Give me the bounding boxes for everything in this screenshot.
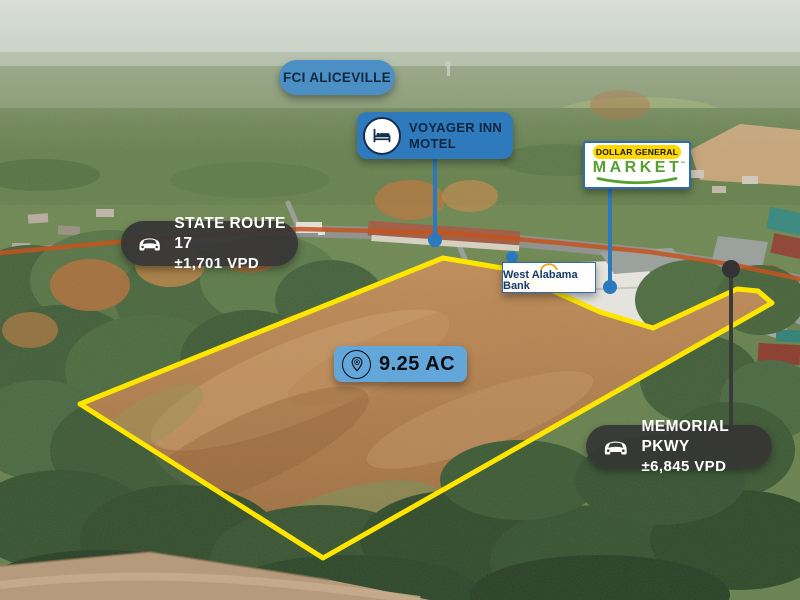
- voyager-inn-text: VOYAGER INN MOTEL: [409, 120, 502, 151]
- acreage-label: 9.25 AC: [334, 346, 467, 382]
- bed-icon: [363, 117, 401, 155]
- state-route-17-text: STATE ROUTE 17 ±1,701 VPD: [174, 214, 298, 274]
- west-alabama-bank-label: West Alabama Bank: [502, 262, 596, 293]
- acreage-value: 9.25 AC: [379, 353, 455, 376]
- location-pin-icon: [342, 350, 371, 379]
- memorial-pkwy-location-dot: [722, 260, 740, 278]
- photo-grain: [0, 0, 800, 600]
- aerial-listing-photo: FCI ALICEVILLE VOYAGER INN MOTEL DOLLAR …: [0, 0, 800, 600]
- memorial-pkwy-label: MEMORIAL PKWY ±6,845 VPD: [586, 425, 772, 468]
- aerial-photo-background: [0, 0, 800, 600]
- voyager-inn-motel-label: VOYAGER INN MOTEL: [357, 112, 513, 159]
- dollar-general-location-dot: [603, 280, 617, 294]
- voyager-location-dot: [428, 233, 442, 247]
- market-wordmark: MARKET ™: [593, 160, 685, 176]
- state-route-17-label: STATE ROUTE 17 ±1,701 VPD: [121, 221, 298, 266]
- trademark-symbol: ™: [680, 162, 685, 167]
- memorial-pkwy-text: MEMORIAL PKWY ±6,845 VPD: [642, 417, 772, 477]
- fci-aliceville-text: FCI ALICEVILLE: [283, 70, 391, 85]
- car-icon: [599, 436, 633, 458]
- dollar-general-banner: DOLLAR GENERAL: [593, 145, 681, 159]
- market-swoosh: [595, 177, 679, 185]
- bank-name-text: West Alabama Bank: [503, 270, 595, 292]
- fci-aliceville-label: FCI ALICEVILLE: [279, 60, 395, 95]
- dollar-general-market-sign: DOLLAR GENERAL MARKET ™: [583, 141, 691, 189]
- car-icon: [134, 233, 165, 254]
